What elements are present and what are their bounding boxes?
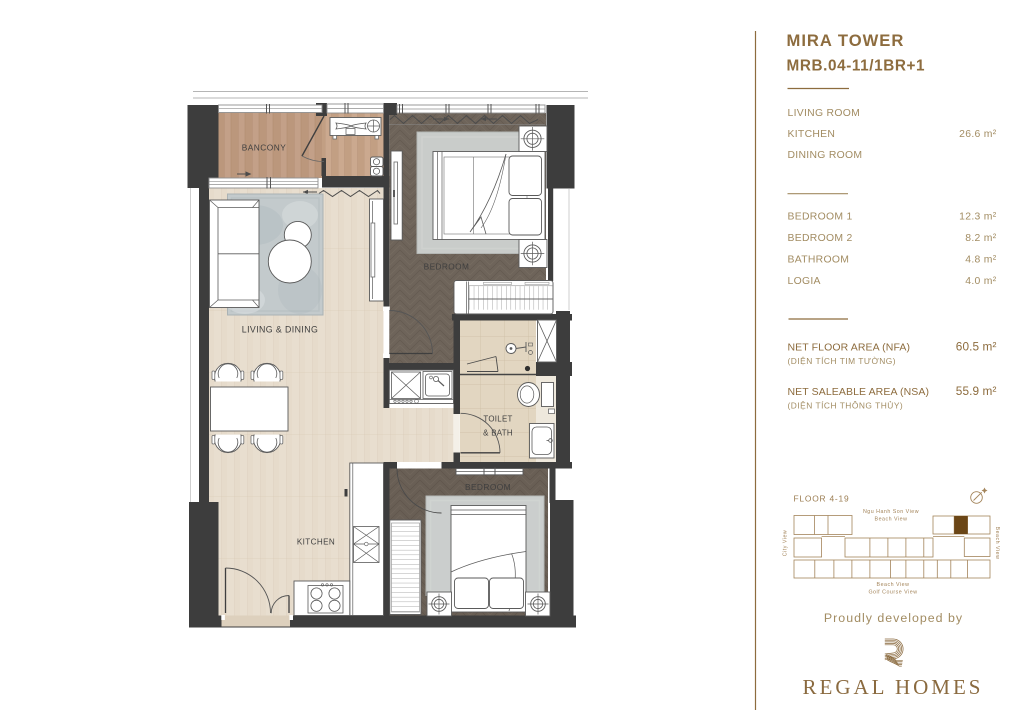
svg-text:Beach View: Beach View <box>994 527 1000 560</box>
svg-text:Proudly developed by: Proudly developed by <box>824 611 963 625</box>
svg-text:BEDROOM 1: BEDROOM 1 <box>788 212 853 223</box>
svg-text:4.8 m²: 4.8 m² <box>965 255 996 266</box>
svg-text:12.3 m²: 12.3 m² <box>959 212 997 223</box>
svg-text:BATHROOM: BATHROOM <box>788 255 850 266</box>
svg-text:KITCHEN: KITCHEN <box>788 129 836 140</box>
svg-text:BEDROOM: BEDROOM <box>424 262 470 272</box>
svg-text:LOGIA: LOGIA <box>788 276 821 287</box>
svg-text:BEDROOM 2: BEDROOM 2 <box>788 233 853 244</box>
svg-text:KITCHEN: KITCHEN <box>297 538 335 547</box>
svg-text:Beach View: Beach View <box>877 582 910 588</box>
svg-text:& BATH: & BATH <box>483 429 513 438</box>
svg-text:(DIỆN TÍCH TIM TƯỜNG): (DIỆN TÍCH TIM TƯỜNG) <box>788 356 897 366</box>
svg-text:FLOOR 4-19: FLOOR 4-19 <box>794 494 850 504</box>
svg-text:NET FLOOR AREA (NFA): NET FLOOR AREA (NFA) <box>788 342 911 354</box>
svg-text:Golf Course View: Golf Course View <box>868 590 917 596</box>
svg-text:DINING ROOM: DINING ROOM <box>788 150 863 161</box>
svg-text:MRB.04-11/1BR+1: MRB.04-11/1BR+1 <box>787 58 926 75</box>
svg-text:Beach View: Beach View <box>875 517 908 523</box>
svg-text:4.0 m²: 4.0 m² <box>965 276 996 287</box>
svg-text:LIVING & DINING: LIVING & DINING <box>242 325 318 335</box>
svg-text:55.9 m²: 55.9 m² <box>956 384 997 398</box>
svg-text:LIVING ROOM: LIVING ROOM <box>788 108 861 119</box>
svg-text:(DIỆN TÍCH THÔNG THỦY): (DIỆN TÍCH THÔNG THỦY) <box>788 400 904 411</box>
svg-text:Ngu Hanh Son View: Ngu Hanh Son View <box>863 509 919 515</box>
svg-text:BANCONY: BANCONY <box>242 143 287 153</box>
svg-text:8.2 m²: 8.2 m² <box>965 233 996 244</box>
svg-text:BEDROOM: BEDROOM <box>465 482 511 492</box>
svg-text:NET SALEABLE AREA (NSA): NET SALEABLE AREA (NSA) <box>788 386 930 398</box>
svg-text:REGAL HOMES: REGAL HOMES <box>803 675 984 699</box>
svg-text:TOILET: TOILET <box>483 415 512 424</box>
svg-text:60.5 m²: 60.5 m² <box>956 340 997 354</box>
svg-text:26.6 m²: 26.6 m² <box>959 129 997 140</box>
svg-text:City View: City View <box>783 530 789 556</box>
svg-text:MIRA TOWER: MIRA TOWER <box>787 31 905 50</box>
